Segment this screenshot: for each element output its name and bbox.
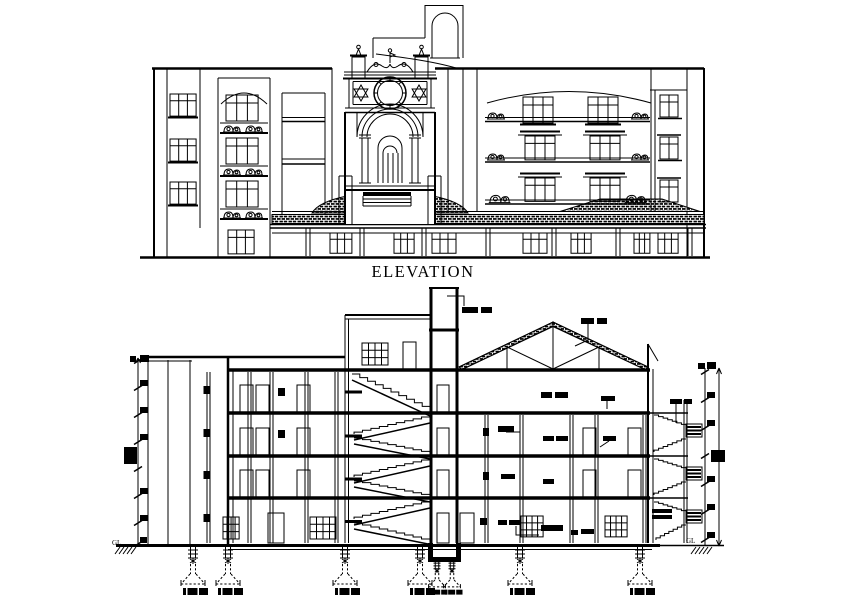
truss-roof <box>459 318 658 370</box>
left-recessed-strip <box>282 68 332 223</box>
drawing-sheet: ELEVATION <box>0 0 866 602</box>
stair-core <box>345 315 431 544</box>
right-exterior-stair <box>652 399 702 543</box>
left-wing-windows <box>168 94 198 206</box>
right-end-bay-windows <box>657 95 682 202</box>
section-drawing: GL GL <box>112 288 725 595</box>
architectural-drawing-canvas: ELEVATION <box>0 0 866 602</box>
dimension-line-right: GL <box>686 362 725 546</box>
facade-arch-curve <box>487 92 651 104</box>
right-wing <box>448 68 687 212</box>
left-block <box>223 357 338 545</box>
foundations <box>181 547 655 595</box>
elevation-drawing: ELEVATION <box>140 6 710 282</box>
gl-label-right: GL <box>686 537 695 545</box>
elevation-caption: ELEVATION <box>371 262 474 281</box>
gl-label-left: GL <box>112 539 121 547</box>
central-entrance-tower <box>339 45 441 224</box>
machine-room-label <box>447 296 492 313</box>
dimension-line-left: GL <box>112 355 149 547</box>
ground-floor-colonnade <box>272 228 704 256</box>
left-bay-balconies <box>218 78 270 258</box>
